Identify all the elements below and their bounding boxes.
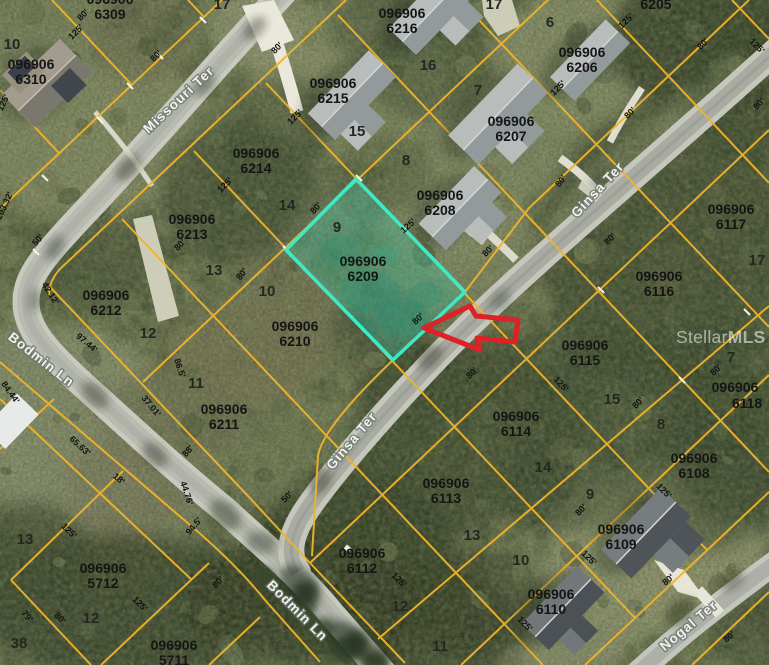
svg-text:10: 10 (4, 36, 21, 53)
svg-text:6210: 6210 (279, 333, 310, 349)
svg-text:6216: 6216 (386, 20, 417, 36)
svg-text:6310: 6310 (15, 71, 46, 87)
svg-text:6108: 6108 (678, 465, 709, 481)
svg-text:096906: 096906 (233, 145, 280, 161)
svg-text:096906: 096906 (272, 318, 319, 334)
svg-text:096906: 096906 (339, 545, 386, 561)
svg-text:7: 7 (474, 82, 482, 99)
svg-text:096906: 096906 (379, 5, 426, 21)
svg-text:6109: 6109 (605, 536, 636, 552)
svg-text:6309: 6309 (94, 6, 125, 22)
svg-text:38: 38 (11, 635, 28, 652)
svg-text:7: 7 (727, 349, 735, 366)
svg-text:6110: 6110 (536, 601, 567, 617)
svg-text:14: 14 (535, 459, 552, 476)
svg-text:6206: 6206 (566, 59, 597, 75)
svg-text:096906: 096906 (488, 113, 535, 129)
svg-text:096906: 096906 (559, 44, 606, 60)
svg-text:096906: 096906 (169, 211, 216, 227)
svg-text:096906: 096906 (80, 560, 127, 576)
svg-text:17: 17 (486, 0, 503, 13)
svg-text:14: 14 (279, 197, 296, 214)
svg-text:13: 13 (206, 262, 223, 279)
svg-text:17: 17 (214, 0, 231, 13)
svg-text:6215: 6215 (317, 90, 348, 106)
svg-text:6212: 6212 (90, 302, 121, 318)
svg-text:096906: 096906 (8, 56, 55, 72)
svg-text:5711: 5711 (159, 652, 190, 665)
svg-text:11: 11 (432, 638, 448, 655)
svg-text:096906: 096906 (708, 201, 755, 217)
svg-text:096906: 096906 (671, 450, 718, 466)
svg-text:096906: 096906 (83, 287, 130, 303)
svg-text:096906: 096906 (151, 637, 198, 653)
svg-text:16: 16 (420, 57, 437, 74)
svg-text:6112: 6112 (347, 560, 378, 576)
svg-text:096906: 096906 (528, 586, 575, 602)
svg-text:6213: 6213 (176, 226, 207, 242)
svg-text:096906: 096906 (201, 401, 248, 417)
svg-text:6209: 6209 (347, 268, 378, 284)
svg-text:6113: 6113 (431, 490, 462, 506)
svg-text:13: 13 (464, 527, 481, 544)
svg-text:096906: 096906 (423, 475, 470, 491)
svg-text:6211: 6211 (209, 416, 240, 432)
svg-text:11: 11 (188, 375, 204, 392)
svg-text:10: 10 (513, 552, 530, 569)
svg-text:6207: 6207 (495, 128, 526, 144)
svg-text:10: 10 (259, 283, 276, 300)
svg-text:096906: 096906 (598, 521, 645, 537)
svg-text:096906: 096906 (310, 75, 357, 91)
svg-text:6: 6 (546, 14, 554, 31)
svg-text:6205: 6205 (640, 0, 671, 12)
svg-text:17: 17 (749, 252, 766, 269)
svg-text:096906: 096906 (340, 253, 387, 269)
svg-text:096906: 096906 (417, 187, 464, 203)
svg-text:8: 8 (402, 152, 410, 169)
svg-text:9: 9 (586, 486, 594, 503)
svg-text:6114: 6114 (501, 423, 532, 439)
svg-text:12: 12 (392, 598, 409, 615)
svg-text:6115: 6115 (570, 352, 601, 368)
svg-text:096906: 096906 (712, 379, 759, 395)
svg-text:5712: 5712 (87, 575, 118, 591)
svg-text:9: 9 (333, 219, 341, 236)
svg-text:6117: 6117 (716, 216, 747, 232)
svg-text:13: 13 (17, 531, 34, 548)
svg-text:8: 8 (657, 416, 665, 433)
svg-text:StellarMLS: StellarMLS (676, 327, 766, 347)
svg-text:12: 12 (83, 610, 100, 627)
svg-text:6214: 6214 (240, 160, 271, 176)
svg-text:096906: 096906 (562, 337, 609, 353)
svg-text:096906: 096906 (636, 268, 683, 284)
svg-text:15: 15 (349, 123, 366, 140)
svg-text:15: 15 (604, 391, 621, 408)
svg-text:6116: 6116 (644, 283, 675, 299)
svg-text:6208: 6208 (424, 202, 455, 218)
svg-text:6118: 6118 (732, 395, 763, 411)
svg-text:12: 12 (140, 325, 157, 342)
svg-text:096906: 096906 (493, 408, 540, 424)
